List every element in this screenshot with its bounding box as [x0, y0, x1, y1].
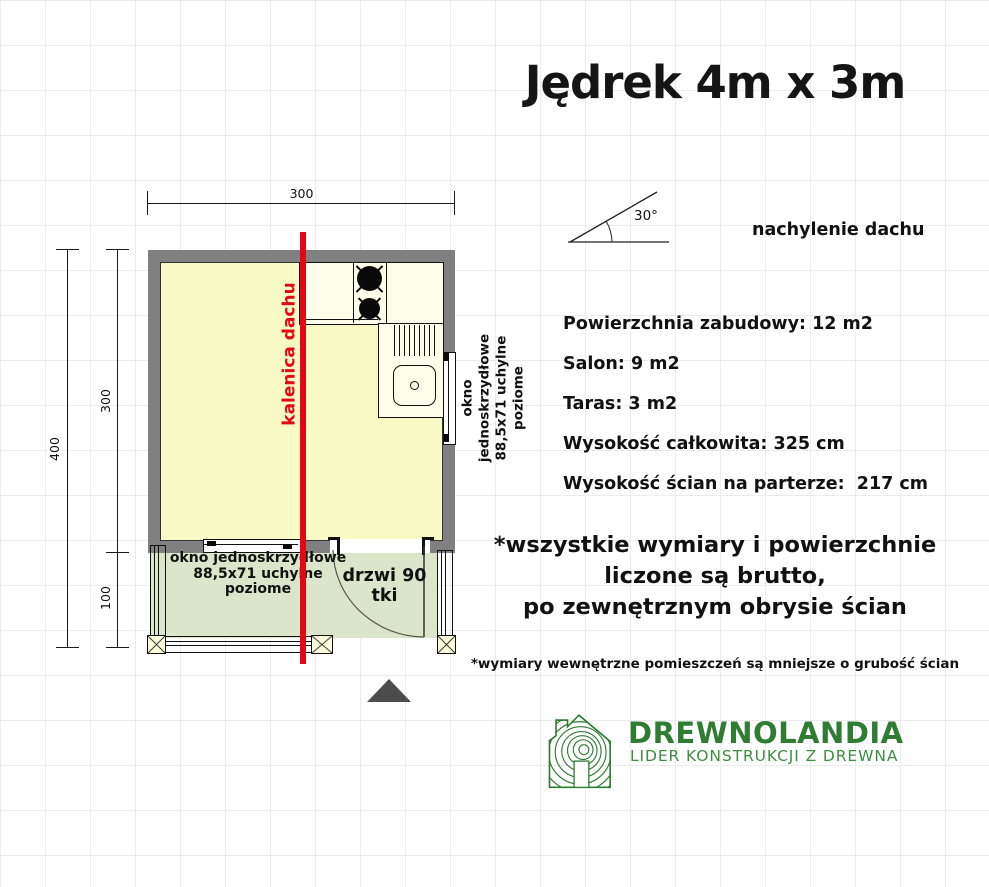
- sink-drainer: [394, 325, 438, 356]
- spec-total-height: Wysokość całkowita: 325 cm: [563, 434, 983, 454]
- gross-note-line3: po zewnętrznym obrysie ścian: [468, 592, 962, 623]
- burner-small: [359, 298, 380, 319]
- counter-divider: [386, 263, 387, 323]
- spec-terrace: Taras: 3 m2: [563, 394, 983, 414]
- dim-label-top: 300: [148, 186, 455, 201]
- dim-tick: [56, 647, 79, 648]
- window-bottom-label: okno jednoskrzydłowe 88,5x71 uchylne poz…: [168, 551, 348, 598]
- entrance-arrow-icon: [367, 679, 411, 702]
- burner-large: [357, 266, 382, 291]
- dim-label-left-terrace: 100: [98, 573, 118, 623]
- roof-angle-label: 30°: [634, 208, 674, 224]
- terrace-post: [437, 635, 456, 654]
- floor-plan-sheet: Jędrek 4m x 3m 300 400 300 100: [0, 0, 989, 887]
- roof-ridge-line: [300, 232, 306, 664]
- window-right-label-line2: 88,5x71 uchylne: [494, 321, 511, 476]
- specs-block: Powierzchnia zabudowy: 12 m2 Salon: 9 m2…: [563, 314, 983, 514]
- roof-pitch-caption: nachylenie dachu: [752, 220, 972, 240]
- dim-tick: [56, 249, 79, 250]
- window-bottom-label-line1: okno jednoskrzydłowe: [168, 551, 348, 567]
- logo-brand-text: DREWNOLANDIA: [628, 716, 928, 750]
- dim-label-left-room: 300: [98, 376, 118, 426]
- window-right-label-line1: okno jednoskrzydłowe: [460, 321, 494, 476]
- gross-note-line1: *wszystkie wymiary i powierzchnie: [468, 530, 962, 561]
- roof-ridge-label: kalenica dachu: [280, 282, 300, 427]
- window-right: [443, 352, 456, 445]
- logo-tagline-text: LIDER KONSTRUKCJI Z DREWNA: [630, 747, 930, 765]
- window-cap: [207, 541, 216, 546]
- window-right-label: okno jednoskrzydłowe 88,5x71 uchylne poz…: [460, 321, 520, 476]
- counter-divider: [353, 263, 354, 323]
- door-label: drzwi 90 tki: [327, 566, 442, 606]
- window-bottom-label-line3: poziome: [168, 582, 348, 598]
- drewnolandia-logo-icon: [538, 705, 620, 791]
- gross-dimensions-note: *wszystkie wymiary i powierzchnie liczon…: [468, 530, 962, 623]
- terrace-railing-left: [150, 545, 166, 639]
- gross-note-line2: liczone są brutto,: [468, 561, 962, 592]
- window-cap: [444, 353, 449, 361]
- window-bottom-label-line2: 88,5x71 uchylne: [168, 567, 348, 583]
- spec-wall-height: Wysokość ścian na parterze: 217 cm: [563, 474, 983, 494]
- dim-line-top: [148, 203, 455, 204]
- window-right-midline: [448, 353, 449, 442]
- counter-edge-line: [300, 319, 378, 320]
- terrace-post: [311, 635, 333, 654]
- spec-built-area: Powierzchnia zabudowy: 12 m2: [563, 314, 983, 334]
- dim-label-left-total: 400: [47, 424, 67, 474]
- dim-tick: [106, 249, 129, 250]
- spec-salon: Salon: 9 m2: [563, 354, 983, 374]
- dim-line-left-total: [67, 250, 68, 648]
- roof-pitch-arc: [606, 221, 612, 242]
- terrace-railing-bottom: [148, 636, 314, 653]
- window-cap: [444, 434, 449, 442]
- window-cap: [283, 544, 292, 549]
- window-right-label-line3: poziome: [511, 321, 528, 476]
- internal-dimensions-note: *wymiary wewnętrzne pomieszczeń są mniej…: [468, 656, 962, 672]
- page-title: Jędrek 4m x 3m: [500, 56, 930, 116]
- terrace-post: [147, 635, 166, 654]
- sink-drain: [410, 381, 419, 390]
- dim-tick: [106, 647, 129, 648]
- door-jamb-right: [422, 537, 434, 555]
